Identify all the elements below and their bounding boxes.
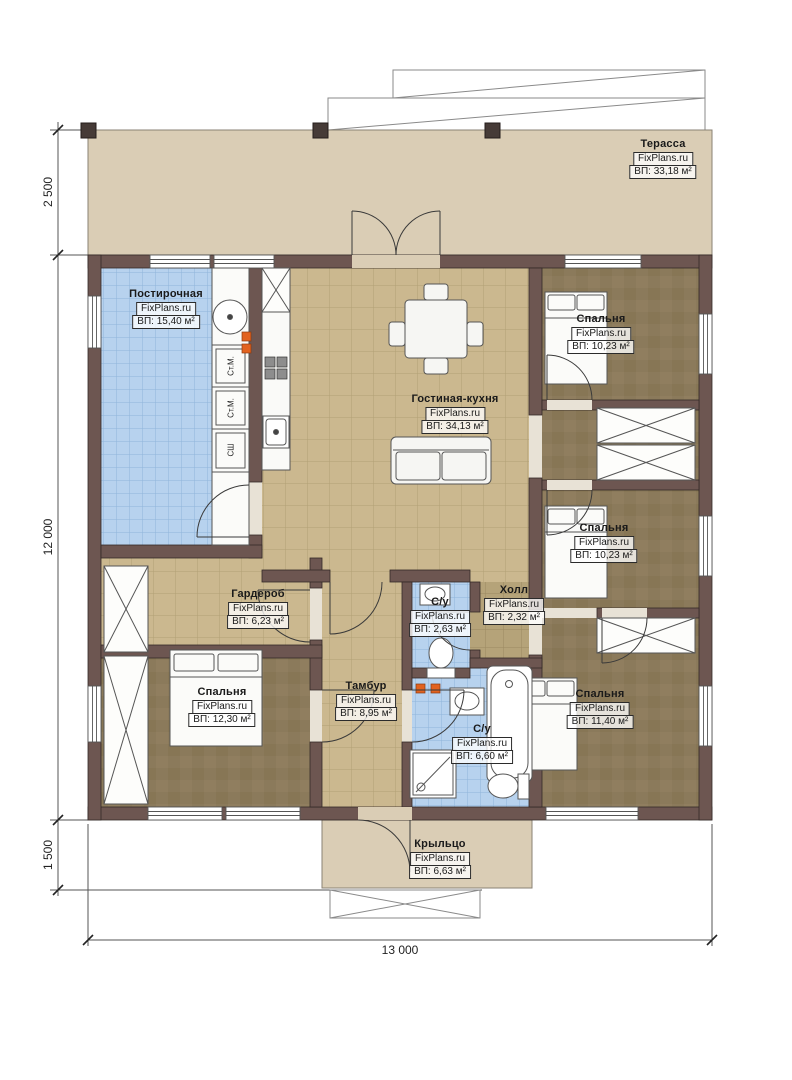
watermark: FixPlans.ru: [228, 602, 288, 616]
room-label-bedroom-br: Спальня FixPlans.ru ВП: 11,40 м²: [567, 688, 634, 729]
window: [699, 516, 712, 576]
room-name: Спальня: [580, 522, 629, 535]
chair: [424, 358, 448, 374]
room-name: Спальня: [576, 688, 625, 701]
room-name: Спальня: [577, 313, 626, 326]
watermark: FixPlans.ru: [484, 598, 544, 612]
chair: [467, 322, 483, 346]
room-name: Постирочная: [129, 288, 203, 301]
dim-house-width: 13 000: [382, 943, 419, 957]
watermark: FixPlans.ru: [570, 702, 630, 716]
washing-machine-label: Ст.М.: [227, 398, 236, 418]
room-label-bedroom-tr: Спальня FixPlans.ru ВП: 10,23 м²: [567, 313, 634, 354]
floor-plan-page: Терасса FixPlans.ru ВП: 33,18 м² Постиро…: [0, 0, 792, 1080]
window: [699, 686, 712, 746]
room-label-terrace: Терасса FixPlans.ru ВП: 33,18 м²: [629, 138, 696, 179]
room-area: ВП: 2,63 м²: [409, 623, 471, 637]
watermark: FixPlans.ru: [425, 407, 485, 421]
dim-porch-depth: 1 500: [41, 840, 55, 870]
room-area: ВП: 10,23 м²: [570, 549, 637, 563]
window: [699, 314, 712, 374]
room-name: С/у: [473, 723, 491, 736]
roof-outline: [328, 70, 705, 130]
window: [565, 255, 641, 268]
watermark: FixPlans.ru: [452, 737, 512, 751]
room-area: ВП: 11,40 м²: [567, 715, 634, 729]
room-name: Терасса: [640, 138, 685, 151]
window: [88, 686, 101, 742]
shower-tray: [410, 750, 456, 798]
room-label-wardrobe: Гардероб FixPlans.ru ВП: 6,23 м²: [227, 588, 289, 629]
washbasin-big-wc: [450, 688, 484, 715]
window: [214, 255, 274, 268]
dim-house-depth: 12 000: [41, 519, 55, 556]
room-area: ВП: 6,23 м²: [227, 615, 289, 629]
room-label-porch: Крыльцо FixPlans.ru ВП: 6,63 м²: [409, 838, 471, 879]
room-label-laundry: Постирочная FixPlans.ru ВП: 15,40 м²: [129, 288, 203, 329]
room-label-living: Гостиная-кухня FixPlans.ru ВП: 34,13 м²: [411, 393, 498, 434]
window: [88, 296, 101, 348]
watermark: FixPlans.ru: [574, 536, 634, 550]
room-name: Тамбур: [345, 680, 386, 693]
watermark: FixPlans.ru: [336, 694, 396, 708]
room-name: Холл: [500, 584, 528, 597]
room-area: ВП: 34,13 м²: [421, 420, 488, 434]
room-area: ВП: 10,23 м²: [567, 340, 634, 354]
room-area: ВП: 8,95 м²: [335, 707, 397, 721]
room-area: ВП: 15,40 м²: [132, 315, 199, 329]
room-area: ВП: 6,63 м²: [409, 865, 471, 879]
room-label-hall: Холл FixPlans.ru ВП: 2,32 м²: [483, 584, 545, 625]
room-area: ВП: 2,32 м²: [483, 611, 545, 625]
room-label-vestibule: Тамбур FixPlans.ru ВП: 8,95 м²: [335, 680, 397, 721]
toilet-big-wc: [488, 774, 529, 799]
room-area: ВП: 6,60 м²: [451, 750, 513, 764]
window: [226, 807, 300, 820]
dim-terrace-depth: 2 500: [41, 177, 55, 207]
watermark: FixPlans.ru: [633, 152, 693, 166]
window: [150, 255, 210, 268]
room-area: ВП: 33,18 м²: [629, 165, 696, 179]
room-name: Гардероб: [231, 588, 285, 601]
room-label-wc-big: С/у FixPlans.ru ВП: 6,60 м²: [451, 723, 513, 764]
room-name: С/у: [431, 596, 449, 609]
kitchen-sink: [263, 416, 289, 448]
window: [546, 807, 638, 820]
watermark: FixPlans.ru: [571, 327, 631, 341]
window: [148, 807, 222, 820]
washing-machine-label: Ст.М.: [227, 356, 236, 376]
room-label-bedroom-mr: Спальня FixPlans.ru ВП: 10,23 м²: [570, 522, 637, 563]
porch-steps-outline: [330, 890, 480, 918]
fridge: [262, 268, 290, 312]
sofa: [391, 437, 491, 484]
laundry-sink: [213, 300, 247, 334]
dining-table: [405, 300, 467, 358]
watermark: FixPlans.ru: [410, 852, 470, 866]
room-name: Крыльцо: [414, 838, 465, 851]
drying-cabinet-label: СШ: [227, 443, 236, 456]
room-name: Гостиная-кухня: [411, 393, 498, 406]
chair: [389, 322, 405, 346]
watermark: FixPlans.ru: [410, 610, 470, 624]
watermark: FixPlans.ru: [136, 302, 196, 316]
chair: [424, 284, 448, 300]
room-area: ВП: 12,30 м²: [188, 713, 255, 727]
room-name: Спальня: [198, 686, 247, 699]
room-label-wc-small: С/у FixPlans.ru ВП: 2,63 м²: [409, 596, 471, 637]
room-label-bedroom-bl: Спальня FixPlans.ru ВП: 12,30 м²: [188, 686, 255, 727]
toilet-small-wc: [427, 638, 455, 678]
watermark: FixPlans.ru: [192, 700, 252, 714]
